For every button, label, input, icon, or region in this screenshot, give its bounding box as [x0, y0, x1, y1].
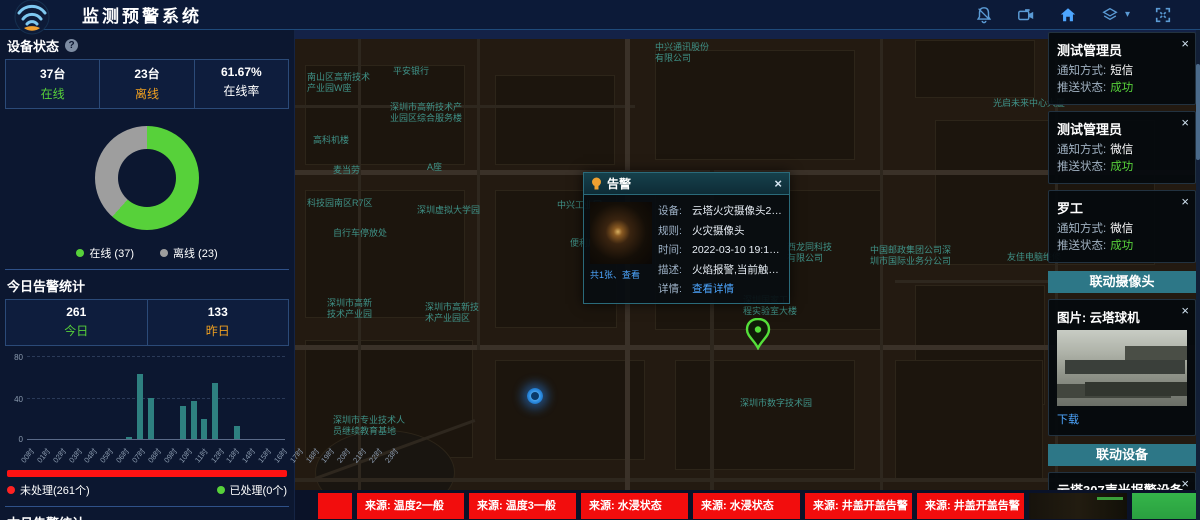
bar-05时	[81, 356, 92, 439]
close-icon[interactable]: ×	[1181, 115, 1189, 130]
close-icon[interactable]: ×	[1181, 36, 1189, 51]
notification-card: × 测试管理员 通知方式:短信 推送状态:成功	[1048, 32, 1196, 105]
alert-source-box[interactable]: 来源: 水浸状态	[581, 493, 688, 519]
map-place-label: 中兴通讯股份 有限公司	[655, 42, 709, 64]
month-alarm-header: 本月告警统计	[5, 507, 289, 520]
right-notifications-panel: × 测试管理员 通知方式:短信 推送状态:成功 × 测试管理员 通知方式:微信 …	[1048, 32, 1196, 520]
bar-21时	[253, 356, 264, 439]
offline-count-cell: 23台 离线	[100, 60, 194, 108]
bar-14时	[178, 356, 189, 439]
map-place-label: A座	[427, 162, 442, 173]
map-place-label: 麦当劳	[333, 165, 360, 176]
close-icon[interactable]: ×	[1181, 194, 1189, 209]
view-detail-link[interactable]: 查看详情	[692, 280, 734, 300]
bar-19时	[231, 356, 242, 439]
chevron-down-icon[interactable]: ▾	[1125, 9, 1130, 20]
download-link[interactable]: 下载	[1057, 411, 1079, 427]
bar-23时	[274, 356, 285, 439]
bar-02时	[49, 356, 60, 439]
map-place-label: 科技园南区R7区	[307, 198, 373, 209]
red-dot-icon	[7, 486, 15, 494]
bar-00时	[27, 356, 38, 439]
alert-boxes: 来源: 温度2一般来源: 温度3一般来源: 水浸状态来源: 水浸状态来源: 井盖…	[318, 493, 1029, 519]
hourly-alarm-bar-chart: 80 40 0	[27, 356, 285, 440]
fullscreen-icon[interactable]	[1154, 6, 1172, 24]
bar-x-axis: 00时01时02时03时04时05时06时07时08时09时10时11时12时1…	[27, 442, 285, 466]
alert-source-box[interactable]	[318, 493, 352, 519]
app-header: 监测预警系统 ▾	[0, 0, 1200, 30]
page-title: 监测预警系统	[82, 2, 202, 27]
ytick-0: 0	[7, 435, 23, 444]
gray-dot-icon	[160, 249, 168, 257]
map-place-label: 深圳市高新 技术产业园	[327, 298, 372, 320]
scrollbar-thumb[interactable]	[1196, 64, 1200, 160]
bar-series	[27, 356, 285, 439]
home-icon[interactable]	[1059, 6, 1077, 24]
legend-online[interactable]: 在线 (37)	[76, 245, 134, 261]
bar-10时	[135, 356, 146, 439]
bar-20时	[242, 356, 253, 439]
bar-13时	[167, 356, 178, 439]
today-alarm-header: 今日告警统计	[5, 270, 289, 299]
notification-card: × 测试管理员 通知方式:微信 推送状态:成功	[1048, 111, 1196, 184]
online-rate-cell: 61.67% 在线率	[195, 60, 288, 108]
map-place-label: 高科机楼	[313, 135, 349, 146]
alert-source-box[interactable]: 来源: 井盖开盖告警	[917, 493, 1024, 519]
bell-icon[interactable]	[975, 6, 993, 24]
bar-07时	[102, 356, 113, 439]
bar-17时	[210, 356, 221, 439]
bar-12时	[156, 356, 167, 439]
today-alarm-table: 261 今日 133 昨日	[5, 299, 289, 346]
alarm-detail-row: 详情:查看详情	[658, 280, 783, 300]
camera-snapshot-card: × 图片: 云塔球机 下载	[1048, 299, 1196, 436]
online-count-cell: 37台 在线	[6, 60, 100, 108]
map-place-label: 深圳市高新技 术产业园区	[425, 302, 479, 324]
video-camera-icon[interactable]	[1017, 6, 1035, 24]
donut-ring	[95, 126, 199, 230]
alert-source-box[interactable]: 来源: 温度3一般	[469, 493, 576, 519]
bar-09时	[124, 356, 135, 439]
map-place-label: 自行车停放处	[333, 228, 387, 239]
bar-03时	[59, 356, 70, 439]
device-status-title: 设备状态	[7, 36, 59, 55]
location-pin-icon[interactable]	[745, 318, 771, 350]
linked-device-section-header[interactable]: 联动设备	[1048, 444, 1196, 466]
video-feed-green-thumbnail[interactable]	[1132, 493, 1200, 519]
device-cluster-marker[interactable]	[527, 388, 543, 404]
alarm-popup-title: 告警	[607, 175, 631, 192]
close-icon[interactable]: ×	[774, 176, 782, 191]
notification-card: × 罗工 通知方式:微信 推送状态:成功	[1048, 190, 1196, 263]
map-place-label: 深圳市专业技术人 员继续教育基地	[333, 415, 405, 437]
map-place-label: 深圳虚拟大学园	[417, 205, 480, 216]
bar-11时	[145, 356, 156, 439]
alarm-popup: 告警 × 共1张、查看 设备:云塔火灾摄像头202 规则:火灾摄像头 时间:2	[583, 172, 790, 304]
alert-source-box[interactable]: 来源: 温度2一般	[357, 493, 464, 519]
view-images-link[interactable]: 共1张、查看	[590, 268, 640, 281]
monitoring-dashboard: 监测预警系统 ▾ 设备状态 ? 3	[0, 0, 1200, 520]
device-status-donut-chart	[5, 117, 289, 239]
close-icon[interactable]: ×	[1181, 476, 1189, 491]
device-status-table: 37台 在线 23台 离线 61.67% 在线率	[5, 59, 289, 109]
bulb-icon	[591, 177, 602, 191]
alarm-popup-body: 共1张、查看 设备:云塔火灾摄像头202 规则:火灾摄像头 时间:2022-03…	[584, 195, 789, 304]
legend-unprocessed: 未处理(261个)	[7, 482, 90, 498]
map-place-label: 中国邮政集团公司深 圳市国际业务分公司	[870, 245, 951, 267]
today-count-cell: 261 今日	[6, 300, 148, 345]
alarm-popup-header: 告警 ×	[584, 173, 789, 195]
bar-16时	[199, 356, 210, 439]
bar-18时	[221, 356, 232, 439]
map-place-label: 深圳市高新技术产 业园区综合服务楼	[390, 102, 462, 124]
left-stats-panel: 设备状态 ? 37台 在线 23台 离线 61.67% 在线率 在线 (37)	[0, 30, 295, 520]
map-place-label: 平安银行	[393, 66, 429, 77]
map-place-label: 西龙同科技 有限公司	[787, 242, 832, 264]
alarm-time-row: 时间:2022-03-10 19:13:07	[658, 241, 783, 261]
process-legend: 未处理(261个) 已处理(0个)	[5, 477, 289, 504]
green-dot-icon	[217, 486, 225, 494]
scrollbar[interactable]	[1196, 30, 1200, 520]
layers-icon[interactable]	[1101, 6, 1119, 24]
alarm-snapshot[interactable]	[590, 202, 652, 264]
help-icon[interactable]: ?	[65, 39, 78, 52]
bar-04时	[70, 356, 81, 439]
bar-01时	[38, 356, 49, 439]
header-toolbar: ▾	[975, 6, 1200, 24]
alarm-rule-row: 规则:火灾摄像头	[658, 222, 783, 242]
green-dot-icon	[76, 249, 84, 257]
bar-08时	[113, 356, 124, 439]
bar-15时	[188, 356, 199, 439]
camera-snapshot[interactable]	[1057, 330, 1187, 406]
linked-camera-section-header[interactable]: 联动摄像头	[1048, 271, 1196, 293]
alert-source-box[interactable]: 来源: 井盖开盖告警	[805, 493, 912, 519]
donut-legend: 在线 (37) 离线 (23)	[5, 245, 289, 261]
video-feed-thumbnail[interactable]	[1029, 493, 1127, 519]
yesterday-count-cell: 133 昨日	[148, 300, 289, 345]
map-place-label: 深圳市数字技术园	[740, 398, 812, 409]
bar-22时	[264, 356, 275, 439]
close-icon[interactable]: ×	[1181, 303, 1189, 318]
legend-offline[interactable]: 离线 (23)	[160, 245, 218, 261]
alert-source-box[interactable]: 来源: 水浸状态	[693, 493, 800, 519]
alert-ticker: 来源: 温度2一般来源: 温度3一般来源: 水浸状态来源: 水浸状态来源: 井盖…	[295, 490, 1200, 520]
bar-06时	[92, 356, 103, 439]
app-logo-icon	[12, 0, 52, 37]
alarm-device-row: 设备:云塔火灾摄像头202	[658, 202, 783, 222]
alarm-desc-row: 描述:火焰报警,当前触发值为...	[658, 261, 783, 281]
map-place-label: 南山区高新技术 产业园W座	[307, 72, 370, 94]
legend-processed: 已处理(0个)	[217, 482, 287, 498]
